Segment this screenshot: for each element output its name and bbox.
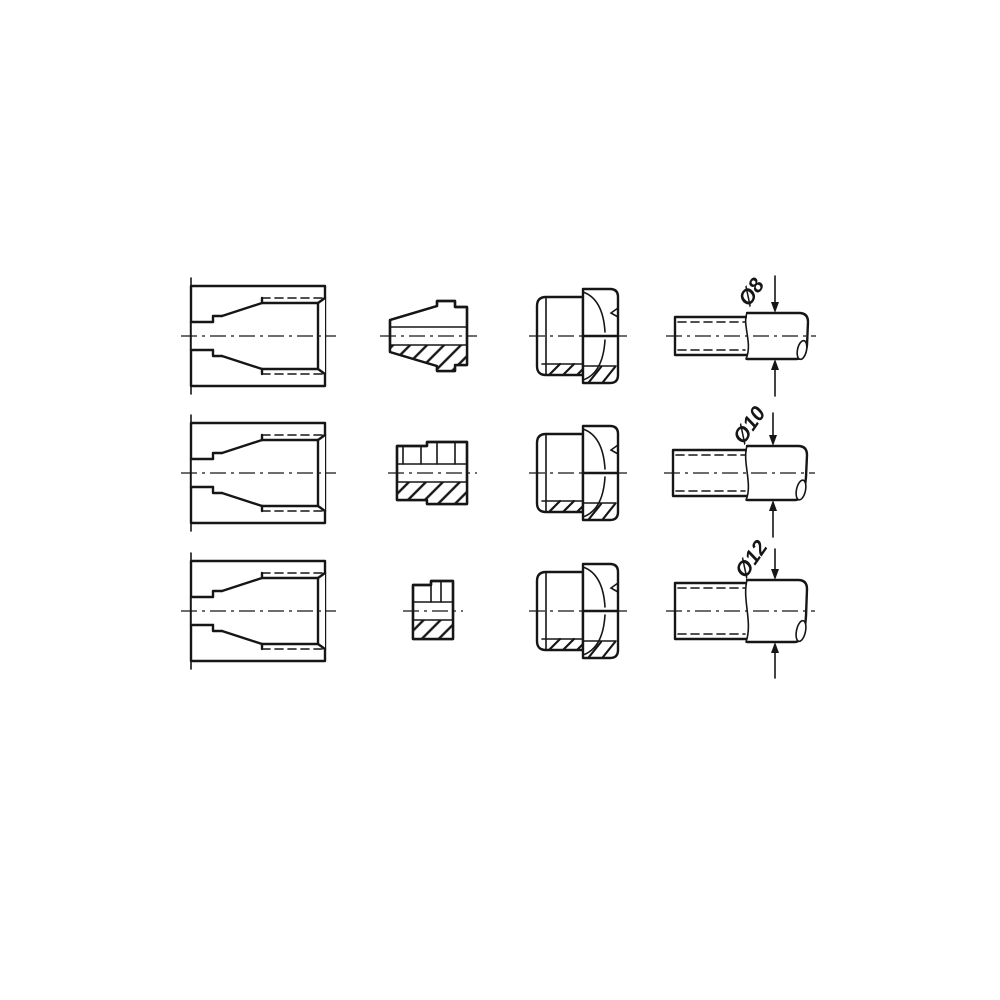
diameter-label-10: Ø10 (729, 402, 771, 448)
row-12: Ø12 (181, 536, 815, 678)
drawing-canvas: Ø8 Ø10 (0, 0, 1000, 1000)
sectioned-body-row-8 (181, 278, 336, 394)
sectioned-body-row-10 (181, 415, 336, 531)
tube-row-12 (666, 580, 815, 642)
sectioned-body-row-12 (181, 553, 336, 669)
tube-row-8 (666, 313, 816, 360)
row-8: Ø8 (181, 274, 816, 396)
diameter-label-12: Ø12 (731, 536, 773, 582)
diameter-label-8: Ø8 (734, 274, 769, 310)
technical-drawing: Ø8 Ø10 (0, 0, 1000, 1000)
cap-nut-row-8 (529, 289, 627, 383)
ferrule-row-8 (380, 301, 477, 371)
cap-nut-row-10 (529, 426, 627, 520)
sleeve-row-12 (403, 581, 463, 639)
row-10: Ø10 (181, 402, 815, 537)
sleeve-row-10 (388, 442, 477, 504)
tube-row-10 (664, 446, 815, 501)
cap-nut-row-12 (529, 564, 627, 658)
